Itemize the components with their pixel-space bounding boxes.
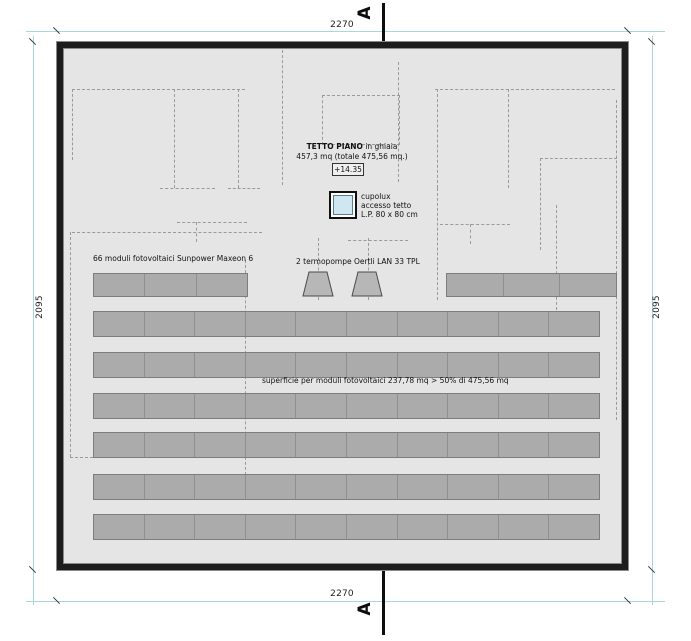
skylight-glass bbox=[333, 195, 353, 215]
skylight-label-line3: L.P. 80 x 80 cm bbox=[361, 210, 418, 219]
roof-title-bold: TETTO PIANO bbox=[307, 142, 363, 151]
skylight-label: cupolux accesso tetto L.P. 80 x 80 cm bbox=[361, 192, 418, 219]
skylight-square bbox=[329, 191, 357, 219]
heat-pump-unit bbox=[302, 271, 334, 297]
skylight-label-line2: accesso tetto bbox=[361, 201, 418, 210]
heat-pump-trapezoid-icon bbox=[351, 271, 383, 297]
heat-pumps-layer bbox=[0, 0, 691, 641]
roof-plan-drawing: 2270 2270 2095 2095 A A cupolux accesso … bbox=[0, 0, 691, 641]
roof-title: TETTO PIANO in ghiaia 457,3 mq (totale 4… bbox=[277, 142, 427, 161]
roof-title-rest: in ghiaia bbox=[363, 142, 397, 151]
pv-surface-note: superficie per moduli fotovoltaici 237,7… bbox=[262, 376, 509, 385]
skylight-label-line1: cupolux bbox=[361, 192, 418, 201]
heat-pump-trapezoid-icon bbox=[302, 271, 334, 297]
elevation-marker: +14.35 bbox=[332, 163, 364, 176]
heat-pump-note: 2 termopompe Oertli LAN 33 TPL bbox=[296, 257, 420, 266]
pv-modules-note: 66 moduli fotovoltaici Sunpower Maxeon 6 bbox=[93, 254, 253, 263]
roof-title-line1: TETTO PIANO in ghiaia bbox=[277, 142, 427, 152]
heat-pump-unit bbox=[351, 271, 383, 297]
roof-area-text: 457,3 mq (totale 475,56 mq.) bbox=[277, 152, 427, 162]
